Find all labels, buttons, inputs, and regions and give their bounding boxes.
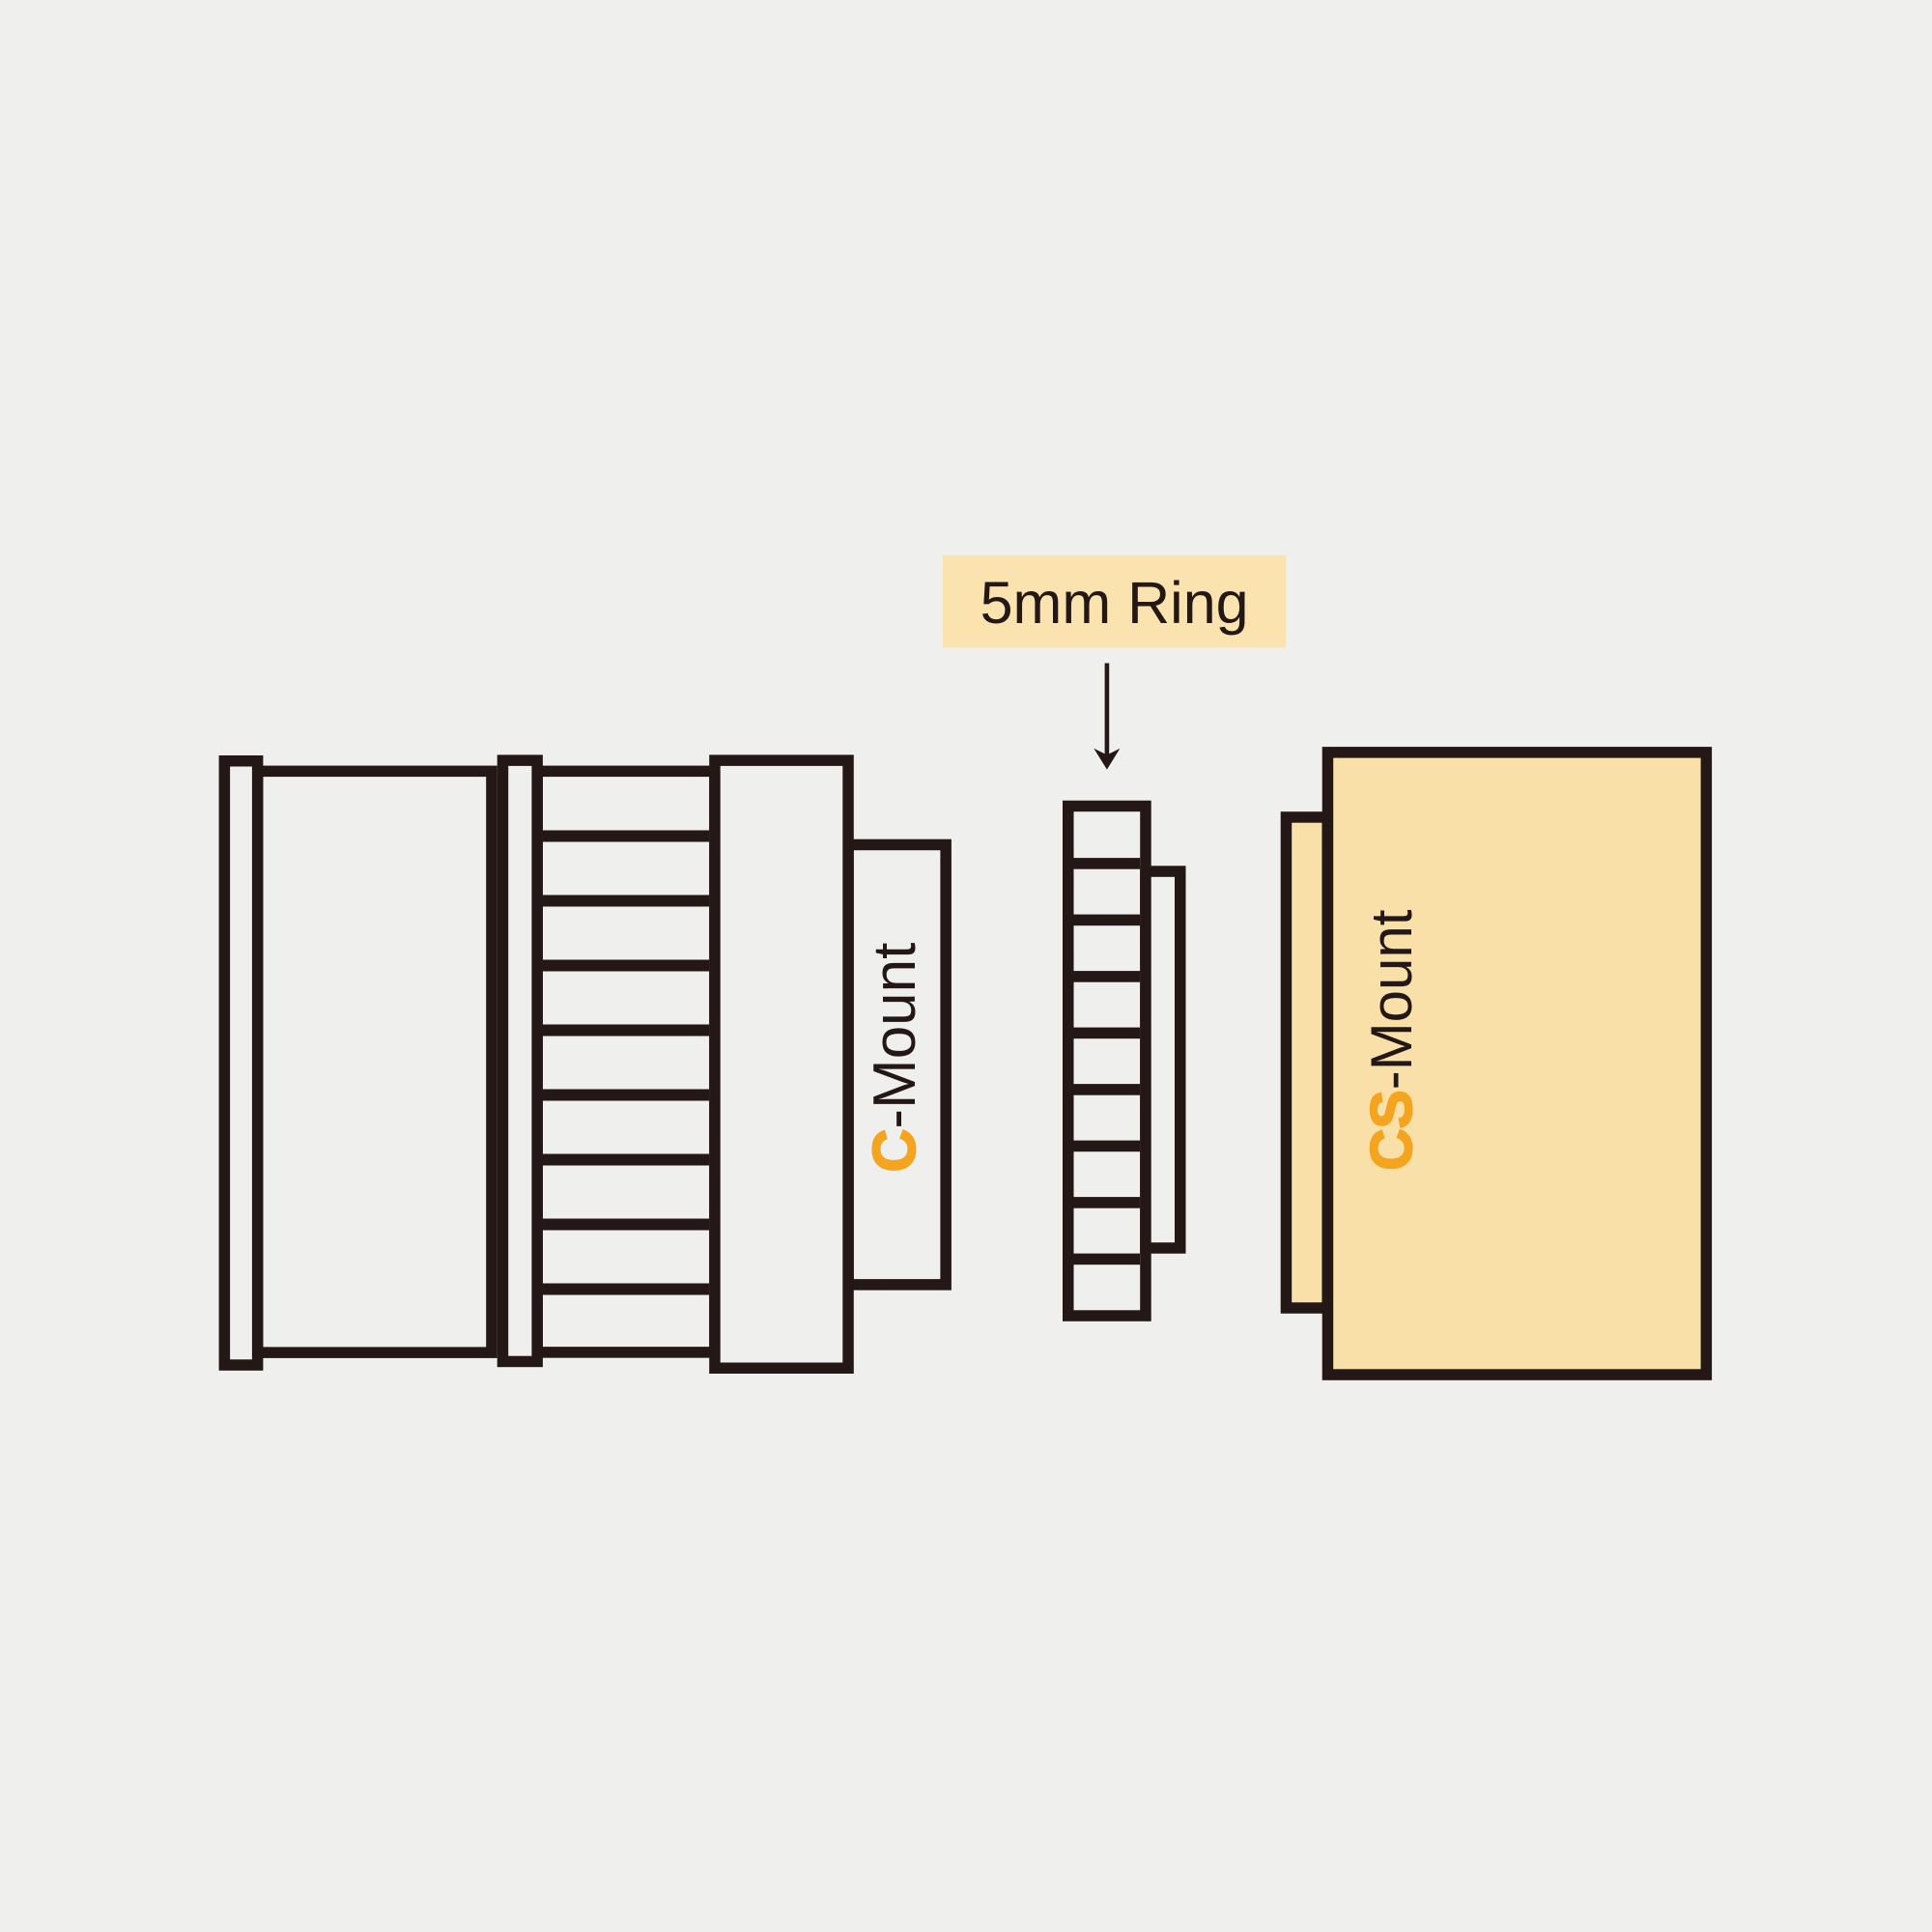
svg-text:5mm Ring: 5mm Ring: [980, 570, 1249, 636]
svg-text:CS-Mount: CS-Mount: [1359, 909, 1424, 1170]
svg-text:C-Mount: C-Mount: [862, 943, 928, 1173]
